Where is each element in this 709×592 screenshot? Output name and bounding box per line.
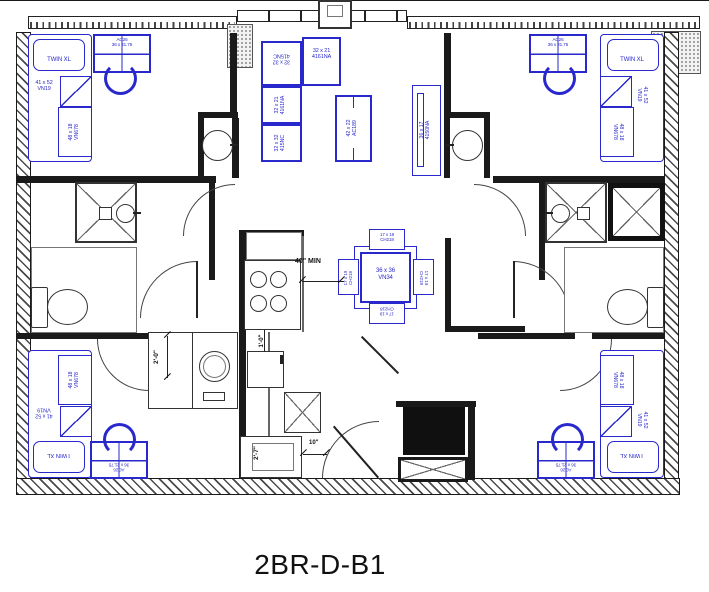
burner-4 bbox=[270, 295, 287, 312]
dining-chair-top-label: 17 x 19 CH218 bbox=[370, 232, 404, 242]
alcove-sink-right bbox=[452, 130, 483, 161]
burner-3 bbox=[250, 295, 267, 312]
kitchen-counter-edge bbox=[302, 236, 304, 332]
wall-dining-right bbox=[445, 238, 451, 332]
chase-closet-x bbox=[608, 183, 665, 241]
vent-grille bbox=[398, 457, 468, 482]
door-leaf-bath1 bbox=[196, 261, 198, 318]
dresser-bottom-right bbox=[600, 406, 632, 437]
wall-alcove-right-side2 bbox=[484, 118, 490, 178]
floor-plan-2br-d-b1: TWIN XL 41 x 52 VN19 48 x 18 VN678 AC26 … bbox=[0, 0, 709, 592]
wall-entry-closet-top bbox=[445, 326, 525, 332]
wall-utility-right bbox=[468, 401, 475, 480]
dim-door-text: 10" bbox=[309, 440, 319, 446]
dresser-top-left-label: 41 x 52 VN19 bbox=[30, 80, 58, 93]
burner-2 bbox=[270, 271, 287, 288]
wall-bedroom2-left bbox=[444, 33, 451, 118]
door-arc-bedroom2 bbox=[474, 184, 526, 236]
dresser-top-right bbox=[600, 76, 632, 107]
dim-40min-text: 40" MIN bbox=[295, 258, 321, 265]
sofa-seat-mid-label: 32 x 21 4161NA bbox=[274, 85, 288, 125]
wall-alcove-left-side2 bbox=[232, 118, 239, 178]
shower-right-arm bbox=[545, 212, 553, 214]
alcove-sink-left bbox=[202, 130, 233, 161]
dim-closet-text: 2'-0" bbox=[150, 337, 162, 377]
desk-chair-bottom-left bbox=[103, 423, 136, 456]
desk-chair-top-left bbox=[104, 62, 137, 95]
sofa-corner-bottom-label: 32 x 32 415NC bbox=[274, 123, 288, 163]
dresser-top-left bbox=[60, 76, 92, 107]
toilet-right-tank bbox=[647, 287, 664, 328]
desk-top-left-label: AC26 36 x 21.75 bbox=[95, 37, 149, 48]
top-wall-line-inner bbox=[0, 0, 709, 1]
sofa-corner-top-label: 32 x 32 415NC bbox=[263, 52, 300, 65]
center-column-inset bbox=[327, 5, 343, 17]
desk-bottom-right-label: AC26 36 x 21.75 bbox=[539, 462, 593, 473]
tv-console-label: 36 x 17 4150NA bbox=[419, 110, 433, 150]
dishwasher bbox=[284, 392, 321, 433]
dim-sink-cabinet-text: 2'-7" bbox=[250, 433, 262, 473]
wall-alcove-right-side1 bbox=[444, 118, 450, 178]
alcove-sink-right-faucet bbox=[446, 144, 454, 146]
sofa-seat-top bbox=[302, 37, 341, 86]
door-leaf-bath2 bbox=[513, 261, 515, 318]
toilet-left-bowl bbox=[47, 289, 88, 325]
bed-top-right-label: TWIN XL bbox=[603, 57, 661, 64]
washer-base bbox=[203, 392, 225, 401]
bed-bottom-left-label: TWIN XL bbox=[30, 451, 88, 458]
toilet-left-tank bbox=[31, 287, 48, 328]
dresser-top-right-label: 41 x 52 VN19 bbox=[634, 75, 648, 115]
dresser-bottom-left-label: 41 x 52 VN19 bbox=[30, 406, 58, 419]
dim-closet-line bbox=[167, 336, 168, 378]
bed-bottom-right-label: TWIN XL bbox=[603, 451, 661, 458]
bed-top-left-pillow bbox=[33, 39, 85, 71]
plan-title: 2BR-D-B1 bbox=[220, 549, 420, 581]
toilet-right-bowl bbox=[607, 289, 648, 325]
dresser-bottom-right-label: 41 x 52 VN19 bbox=[634, 400, 648, 440]
door-arc-bath1 bbox=[140, 261, 197, 318]
dresser-bottom-left bbox=[60, 406, 92, 437]
window-sill-right-hatch bbox=[409, 22, 698, 28]
desk-top-right-label: AC26 36 x 21.75 bbox=[531, 37, 585, 48]
desk-bottom-left-label: AC26 36 x 21.75 bbox=[92, 462, 146, 473]
exterior-wall-right bbox=[664, 32, 679, 480]
alcove-sink-left-faucet bbox=[230, 144, 238, 146]
sofa-seat-top-label: 32 x 21 4161NA bbox=[304, 48, 339, 61]
bed-top-right-pillow bbox=[607, 39, 659, 71]
bed-top-left-label: TWIN XL bbox=[30, 57, 88, 64]
shower-left-drain bbox=[99, 207, 112, 220]
range-stove bbox=[244, 260, 301, 330]
burner-1 bbox=[250, 271, 267, 288]
door-leaf-entry-closet bbox=[361, 336, 399, 374]
wardrobe-top-right-label: 48 x 18 VN678 bbox=[610, 112, 624, 152]
wall-bedroom1-right bbox=[230, 33, 237, 118]
wardrobe-bottom-right-label: 48 x 18 VN678 bbox=[610, 360, 624, 400]
washer-drum-inner bbox=[203, 355, 226, 378]
dining-table-label: 36 x 36 VN34 bbox=[363, 268, 408, 282]
base-cabinet-pull bbox=[280, 355, 283, 364]
utility-shaft-solid bbox=[403, 407, 465, 455]
exterior-wall-bottom bbox=[16, 478, 680, 495]
door-arc-bedroom3 bbox=[97, 339, 149, 391]
window-sill-left-hatch bbox=[30, 22, 235, 28]
desk-chair-bottom-right bbox=[551, 423, 584, 456]
shower-right-head-icon bbox=[551, 204, 570, 223]
wardrobe-bottom-left-label: 48 x 18 VN678 bbox=[68, 360, 82, 400]
kitchen-upper-counter bbox=[246, 232, 302, 260]
wardrobe-top-left-label: 48 x 18 VN678 bbox=[68, 112, 82, 152]
door-arc-bedroom1 bbox=[183, 184, 235, 236]
shower-right-drain bbox=[577, 207, 590, 220]
dim-counter-text: 1'-0" bbox=[256, 321, 268, 361]
dining-chair-bottom-label: 17 x 19 CH218 bbox=[370, 306, 404, 316]
console-table-label: 42 x 22 AC189 bbox=[346, 108, 360, 148]
shower-left-arm bbox=[133, 212, 141, 214]
desk-chair-top-right bbox=[543, 62, 576, 95]
door-arc-bath2 bbox=[513, 261, 570, 318]
dining-chair-right-label: 17 x 19 CH218 bbox=[417, 258, 431, 298]
